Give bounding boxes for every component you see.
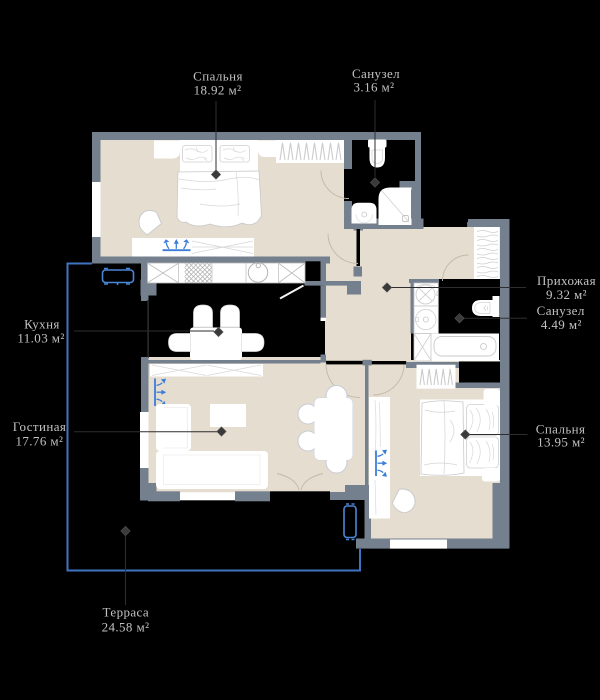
svg-text:13.95 м²: 13.95 м²: [537, 435, 585, 450]
svg-text:11.03 м²: 11.03 м²: [17, 331, 64, 346]
svg-text:24.58 м²: 24.58 м²: [102, 620, 150, 635]
svg-text:18.92 м²: 18.92 м²: [194, 83, 242, 98]
svg-text:17.76 м²: 17.76 м²: [15, 434, 63, 449]
svg-text:Спальня: Спальня: [193, 69, 243, 84]
svg-text:Кухня: Кухня: [24, 317, 60, 332]
svg-text:см: см: [435, 291, 440, 297]
svg-text:Санузел: Санузел: [537, 303, 585, 318]
svg-text:3.16 м²: 3.16 м²: [354, 80, 395, 95]
svg-text:9.32 м²: 9.32 м²: [546, 287, 587, 302]
svg-text:Гостиная: Гостиная: [13, 419, 67, 434]
svg-text:Прихожая: Прихожая: [537, 273, 596, 288]
svg-text:Терраса: Терраса: [103, 605, 150, 620]
svg-text:4.49 м²: 4.49 м²: [541, 317, 582, 332]
